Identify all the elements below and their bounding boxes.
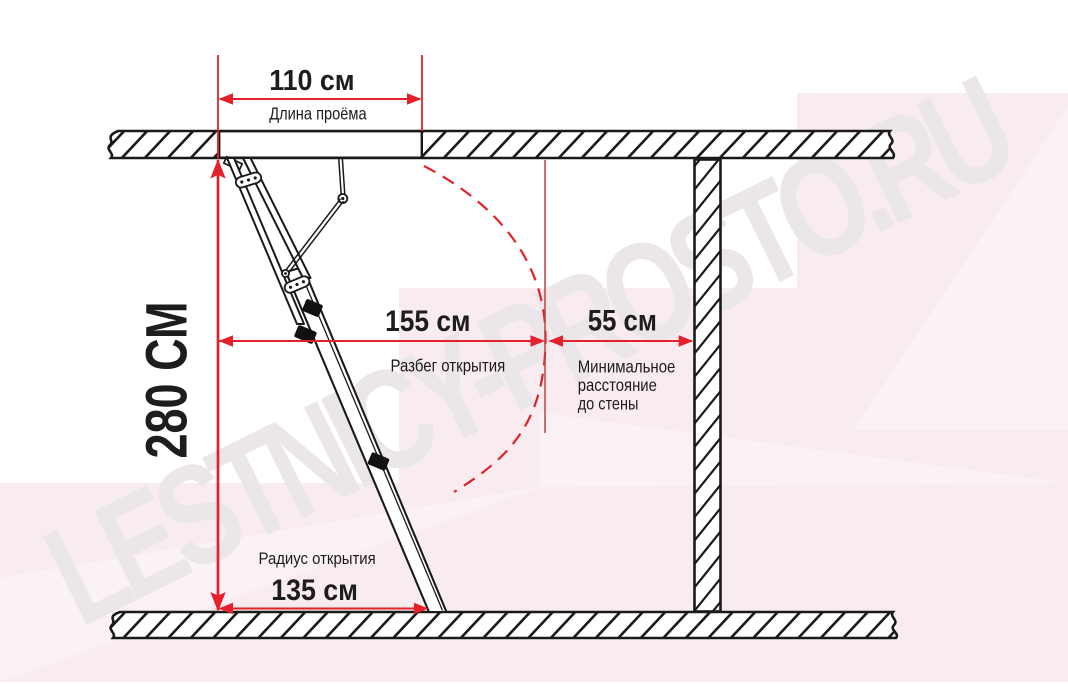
- svg-text:Длина проёма: Длина проёма: [269, 104, 367, 124]
- svg-text:280 СМ: 280 СМ: [135, 302, 200, 459]
- svg-text:135 см: 135 см: [271, 574, 358, 607]
- svg-text:55 см: 55 см: [588, 304, 657, 337]
- svg-text:155 см: 155 см: [385, 305, 470, 338]
- svg-text:расстояние: расстояние: [578, 375, 657, 395]
- svg-text:110 см: 110 см: [269, 65, 354, 97]
- svg-text:Радиус открытия: Радиус открытия: [259, 549, 376, 568]
- svg-text:Разбег открытия: Разбег открытия: [391, 356, 506, 376]
- svg-text:до стены: до стены: [578, 394, 639, 414]
- svg-text:Минимальное: Минимальное: [578, 357, 676, 377]
